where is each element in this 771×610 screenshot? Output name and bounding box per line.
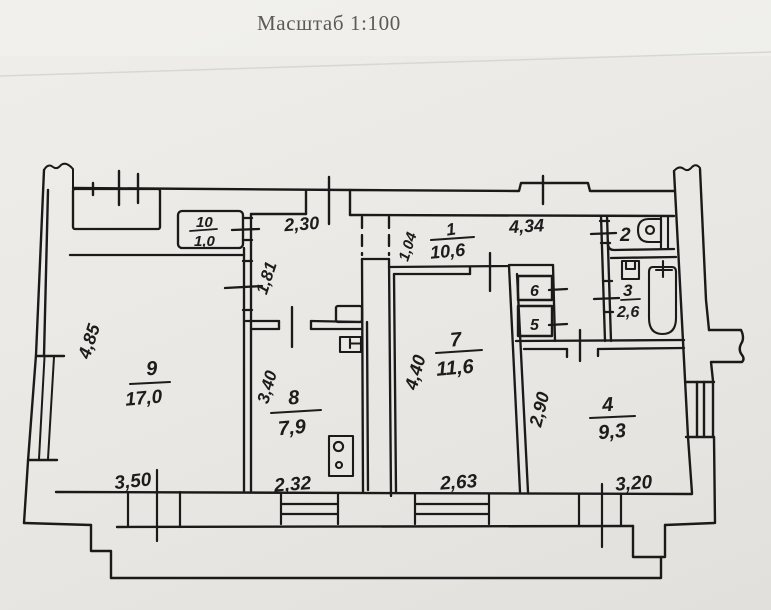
svg-text:10,6: 10,6 bbox=[429, 240, 467, 263]
svg-text:2,90: 2,90 bbox=[525, 390, 553, 430]
svg-text:2,63: 2,63 bbox=[439, 471, 479, 495]
svg-text:10: 10 bbox=[196, 214, 213, 231]
svg-text:3,20: 3,20 bbox=[614, 472, 653, 496]
svg-text:2: 2 bbox=[619, 225, 631, 246]
svg-text:8: 8 bbox=[287, 387, 301, 410]
svg-text:7: 7 bbox=[449, 329, 463, 352]
svg-text:6: 6 bbox=[530, 283, 539, 300]
svg-text:3,40: 3,40 bbox=[254, 368, 282, 406]
svg-text:2,6: 2,6 bbox=[616, 304, 639, 321]
svg-text:4,34: 4,34 bbox=[508, 215, 545, 237]
svg-text:9,3: 9,3 bbox=[597, 420, 627, 444]
svg-text:9: 9 bbox=[145, 358, 159, 381]
svg-text:1,81: 1,81 bbox=[252, 259, 280, 296]
svg-text:4,85: 4,85 bbox=[74, 321, 104, 362]
svg-text:3,50: 3,50 bbox=[113, 469, 152, 494]
svg-text:1: 1 bbox=[445, 219, 457, 239]
svg-text:7,9: 7,9 bbox=[277, 416, 307, 440]
svg-text:4: 4 bbox=[600, 394, 614, 417]
svg-text:1,04: 1,04 bbox=[396, 230, 421, 264]
svg-text:2,32: 2,32 bbox=[273, 473, 313, 497]
svg-text:11,6: 11,6 bbox=[435, 356, 475, 381]
svg-text:4,40: 4,40 bbox=[401, 353, 430, 393]
svg-text:2,30: 2,30 bbox=[282, 213, 319, 235]
svg-text:5: 5 bbox=[530, 317, 540, 334]
svg-text:17,0: 17,0 bbox=[124, 387, 163, 411]
svg-text:3: 3 bbox=[623, 281, 633, 300]
svg-text:Масштаб 1:100: Масштаб 1:100 bbox=[257, 11, 401, 35]
svg-text:1,0: 1,0 bbox=[194, 233, 216, 250]
